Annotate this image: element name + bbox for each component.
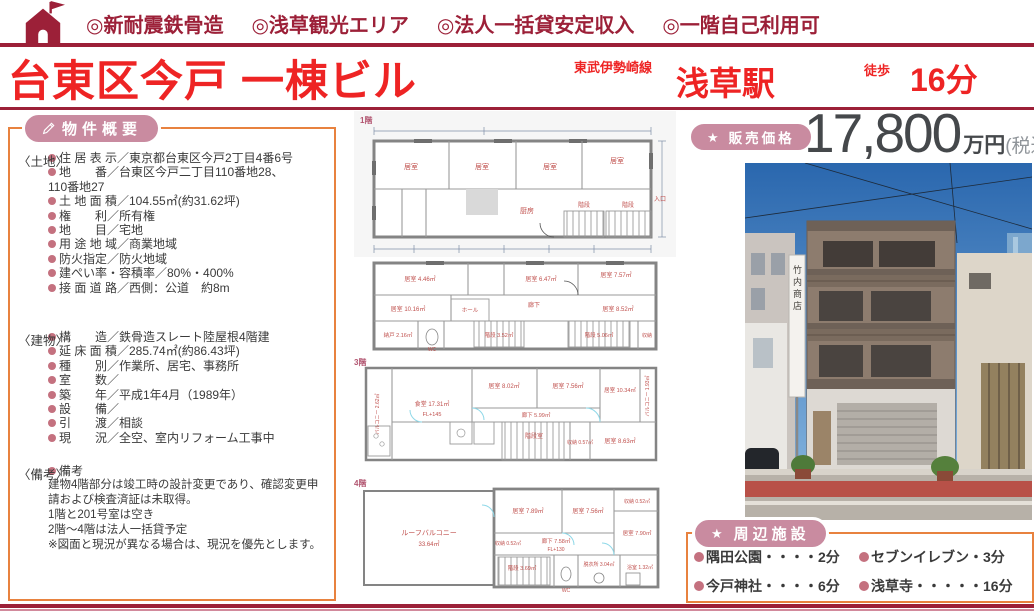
room-label: 居室 8.02㎡ xyxy=(488,382,519,390)
land-item: 防火指定／防火地域 xyxy=(48,252,326,266)
floorplan-4f-walls xyxy=(364,489,658,587)
room-label: 納戸 2.16㎡ xyxy=(384,331,413,339)
footer-divider-accent xyxy=(0,609,1034,611)
floor-label: 3階 xyxy=(354,357,366,367)
room-label: 廊下 5.99㎡ xyxy=(522,411,551,419)
remarks-line: ※図面と現況が異なる場合は、現況を優先とします。 xyxy=(48,538,326,553)
land-item: 地 番／台東区今戸二丁目110番地28、 xyxy=(48,165,326,179)
bullet-icon xyxy=(48,212,56,220)
floor-label: 4階 xyxy=(354,478,366,488)
building-item: 延 床 面 積／285.74㎡(約86.43坪) xyxy=(48,344,326,358)
pencil-icon xyxy=(41,122,55,136)
bullet-icon xyxy=(48,269,56,277)
building-item: 室 数／ xyxy=(48,373,326,387)
room-label: 居室 7.57㎡ xyxy=(600,271,631,279)
house-flag-icon xyxy=(14,0,72,44)
room-label: 収納 xyxy=(642,332,652,339)
floorplan-1f-walls xyxy=(372,139,653,237)
bullet-icon xyxy=(859,581,869,591)
room-label: 階段室 xyxy=(525,432,543,440)
floorplan-3f-walls xyxy=(366,368,656,460)
room-label: 厨房 xyxy=(520,206,534,215)
room-label: 階段 xyxy=(578,201,590,209)
nearby-list: 隅田公園・・・・2分 セブンイレブン・3分 今戸神社・・・・6分 浅草寺・・・・… xyxy=(694,547,1026,596)
land-item: 接 面 道 路／西側：公道 約8m xyxy=(48,281,326,295)
room-label: 居室 10.16㎡ xyxy=(391,305,426,313)
land-item-continuation: 110番地27 xyxy=(48,180,326,194)
room-label: 居室 xyxy=(404,162,418,171)
room-label: 居室 7.56㎡ xyxy=(552,382,583,390)
land-item: 建ぺい率・容積率／80%・400% xyxy=(48,266,326,280)
bullet-icon xyxy=(48,419,56,427)
floorplan-3f: 3階 食堂 17.31㎡ FL+145 居室 8.02㎡ 居室 7.56㎡ 居室… xyxy=(352,356,676,466)
remarks-heading: 〈備考〉 xyxy=(18,464,68,483)
building-item: 引 渡／相談 xyxy=(48,416,326,430)
building-photo: 竹内商店 xyxy=(745,163,1032,520)
walk-time: 16分 xyxy=(910,55,978,101)
room-label: 居室 xyxy=(475,162,489,171)
room-label: ホール xyxy=(462,307,479,314)
land-item: 住 居 表 示／東京都台東区今戸2丁目4番6号 xyxy=(48,151,326,165)
main-building xyxy=(807,221,955,473)
room-label: 居室 6.47㎡ xyxy=(525,275,556,283)
room-label: バルコニー 1.93㎡ xyxy=(644,375,651,416)
neighbor-right xyxy=(957,233,1032,473)
room-label: 居室 8.52㎡ xyxy=(602,305,633,313)
room-label: 収納 0.57㎡ xyxy=(567,439,593,446)
nearby-item: 隅田公園・・・・2分 xyxy=(694,547,859,567)
floorplan-2f: 居室 4.46㎡ 居室 6.47㎡ 居室 7.57㎡ 居室 10.16㎡ 居室 … xyxy=(356,259,676,355)
room-label: 廊下 xyxy=(528,301,540,309)
overview-panel: 〈土地〉 住 居 表 示／東京都台東区今戸2丁目4番6号 地 番／台東区今戸二丁… xyxy=(8,127,336,601)
footer-divider xyxy=(0,604,1034,608)
building-item: 築 年／平成1年4月（1989年） xyxy=(48,388,326,402)
building-item: 構 造／鉄骨造スレート陸屋根4階建 xyxy=(48,330,326,344)
bullet-icon xyxy=(48,376,56,384)
land-heading: 〈土地〉 xyxy=(18,151,68,170)
floorplan-1f: 1階 居室 居室 居室 居室 厨房 階段 階段 入口 xyxy=(354,111,676,257)
bullet-icon xyxy=(859,552,869,562)
remarks-section: 〈備考〉 備考 建物4階部分は竣工時の設計変更であり、確認変更申請および検査済証… xyxy=(18,464,326,553)
room-label: 階段 xyxy=(622,201,634,209)
catchphrase: ◎浅草観光エリア xyxy=(251,9,408,38)
bullet-icon xyxy=(48,240,56,248)
nearby-item: 浅草寺・・・・・16分 xyxy=(859,576,1026,596)
room-label: FL+145 xyxy=(423,412,442,418)
bullet-icon xyxy=(48,255,56,263)
nearby-item: セブンイレブン・3分 xyxy=(859,547,1026,567)
room-label: 居室 7.90㎡ xyxy=(623,529,652,537)
remarks-line: 1階と201号室は空き xyxy=(48,508,326,523)
floor-label: 1階 xyxy=(360,115,372,125)
catchphrase: ◎一階自己利用可 xyxy=(662,9,819,38)
room-label: 階段 3.69㎡ xyxy=(508,564,537,572)
remarks-line: 建物4階部分は竣工時の設計変更であり、確認変更申請および検査済証は未取得。 xyxy=(48,478,326,508)
room-label: 居室 8.63㎡ xyxy=(604,437,635,445)
bullet-icon xyxy=(48,362,56,370)
station-name: 浅草駅 xyxy=(676,57,775,105)
price: 17,800 万円 (税込) xyxy=(804,106,1034,161)
property-flyer: ◎新耐震鉄骨造 ◎浅草観光エリア ◎法人一括貸安定収入 ◎一階自己利用可 台東区… xyxy=(0,0,1034,616)
price-unit: 万円 xyxy=(963,129,1005,159)
catchphrase-list: ◎新耐震鉄骨造 ◎浅草観光エリア ◎法人一括貸安定収入 ◎一階自己利用可 xyxy=(86,9,820,38)
price-amount: 17,800 xyxy=(804,106,960,161)
land-item: 土 地 面 積／104.55㎡(約31.62坪) xyxy=(48,194,326,208)
nearby-badge: ★ 周辺施設 xyxy=(692,517,829,550)
bullet-icon xyxy=(694,552,704,562)
room-label: 浴室 1.32㎡ xyxy=(627,564,653,571)
floorplan-4f: 4階 ルーフバルコニー 33.64㎡ 居室 7.89㎡ 居室 7.56㎡ 居室 … xyxy=(352,477,676,595)
room-label: FL+130 xyxy=(547,547,564,553)
bullet-icon xyxy=(48,391,56,399)
room-label: 食堂 17.31㎡ xyxy=(415,400,450,408)
room-label: 入口 xyxy=(654,196,666,203)
page-title: 台東区今戸 一棟ビル xyxy=(8,47,417,109)
building-heading: 〈建物〉 xyxy=(18,330,68,349)
bullet-icon xyxy=(48,405,56,413)
room-label: 居室 7.56㎡ xyxy=(572,507,603,515)
room-label: 居室 xyxy=(610,156,624,165)
walk-label: 徒歩 xyxy=(864,60,890,79)
room-label: WC xyxy=(428,347,437,353)
land-section: 〈土地〉 住 居 表 示／東京都台東区今戸2丁目4番6号 地 番／台東区今戸二丁… xyxy=(18,151,326,295)
building-section: 〈建物〉 構 造／鉄骨造スレート陸屋根4階建 延 床 面 積／285.74㎡(約… xyxy=(18,330,326,445)
remarks-line: 2階～4階は法人一括貸予定 xyxy=(48,523,326,538)
room-label: 居室 7.89㎡ xyxy=(512,507,543,515)
price-badge: ★ 販売価格 xyxy=(688,121,814,153)
bullet-icon xyxy=(694,581,704,591)
room-label: 廊下 7.58㎡ xyxy=(542,537,571,545)
bullet-icon xyxy=(48,284,56,292)
remarks-bullet: 備考 xyxy=(48,464,326,478)
star-icon: ★ xyxy=(707,131,722,144)
building-item: 現 況／全空、室内リフォーム工事中 xyxy=(48,431,326,445)
overview-badge: 物件概要 xyxy=(22,112,161,145)
catchphrase: ◎法人一括貸安定収入 xyxy=(437,9,634,38)
room-label: ルーフバルコニー xyxy=(401,529,456,537)
room-label: 収納 0.52㎡ xyxy=(495,540,521,547)
catchphrase: ◎新耐震鉄骨造 xyxy=(86,9,223,38)
bullet-icon xyxy=(48,434,56,442)
land-item: 地 目／宅地 xyxy=(48,223,326,237)
nearby-item: 今戸神社・・・・6分 xyxy=(694,576,859,596)
room-label: 収納 0.52㎡ xyxy=(624,498,650,505)
bullet-icon xyxy=(48,197,56,205)
land-item: 権 利／所有権 xyxy=(48,209,326,223)
star-icon: ★ xyxy=(711,527,727,540)
room-label: 居室 xyxy=(543,162,557,171)
room-label: 脱衣所 3.04㎡ xyxy=(583,561,614,568)
room-label: 階段 3.52㎡ xyxy=(485,331,514,339)
neighbor-left xyxy=(745,233,795,486)
room-label: 居室 4.46㎡ xyxy=(404,275,435,283)
room-label: 階段 5.06㎡ xyxy=(585,331,614,339)
bullet-icon xyxy=(48,226,56,234)
room-label: 33.64㎡ xyxy=(418,540,439,548)
room-label: 居室 10.34㎡ xyxy=(604,386,636,394)
building-item: 種 別／作業所、居宅、事務所 xyxy=(48,359,326,373)
rail-line: 東武伊勢崎線 xyxy=(574,57,652,76)
land-item: 用 途 地 域／商業地域 xyxy=(48,237,326,251)
price-tax-note: (税込) xyxy=(1005,131,1034,158)
room-label: WC xyxy=(562,588,571,594)
sign-text: 竹内商店 xyxy=(792,264,802,313)
building-item: 設 備／ xyxy=(48,402,326,416)
room-label: バルコニー 2.62㎡ xyxy=(374,393,381,434)
